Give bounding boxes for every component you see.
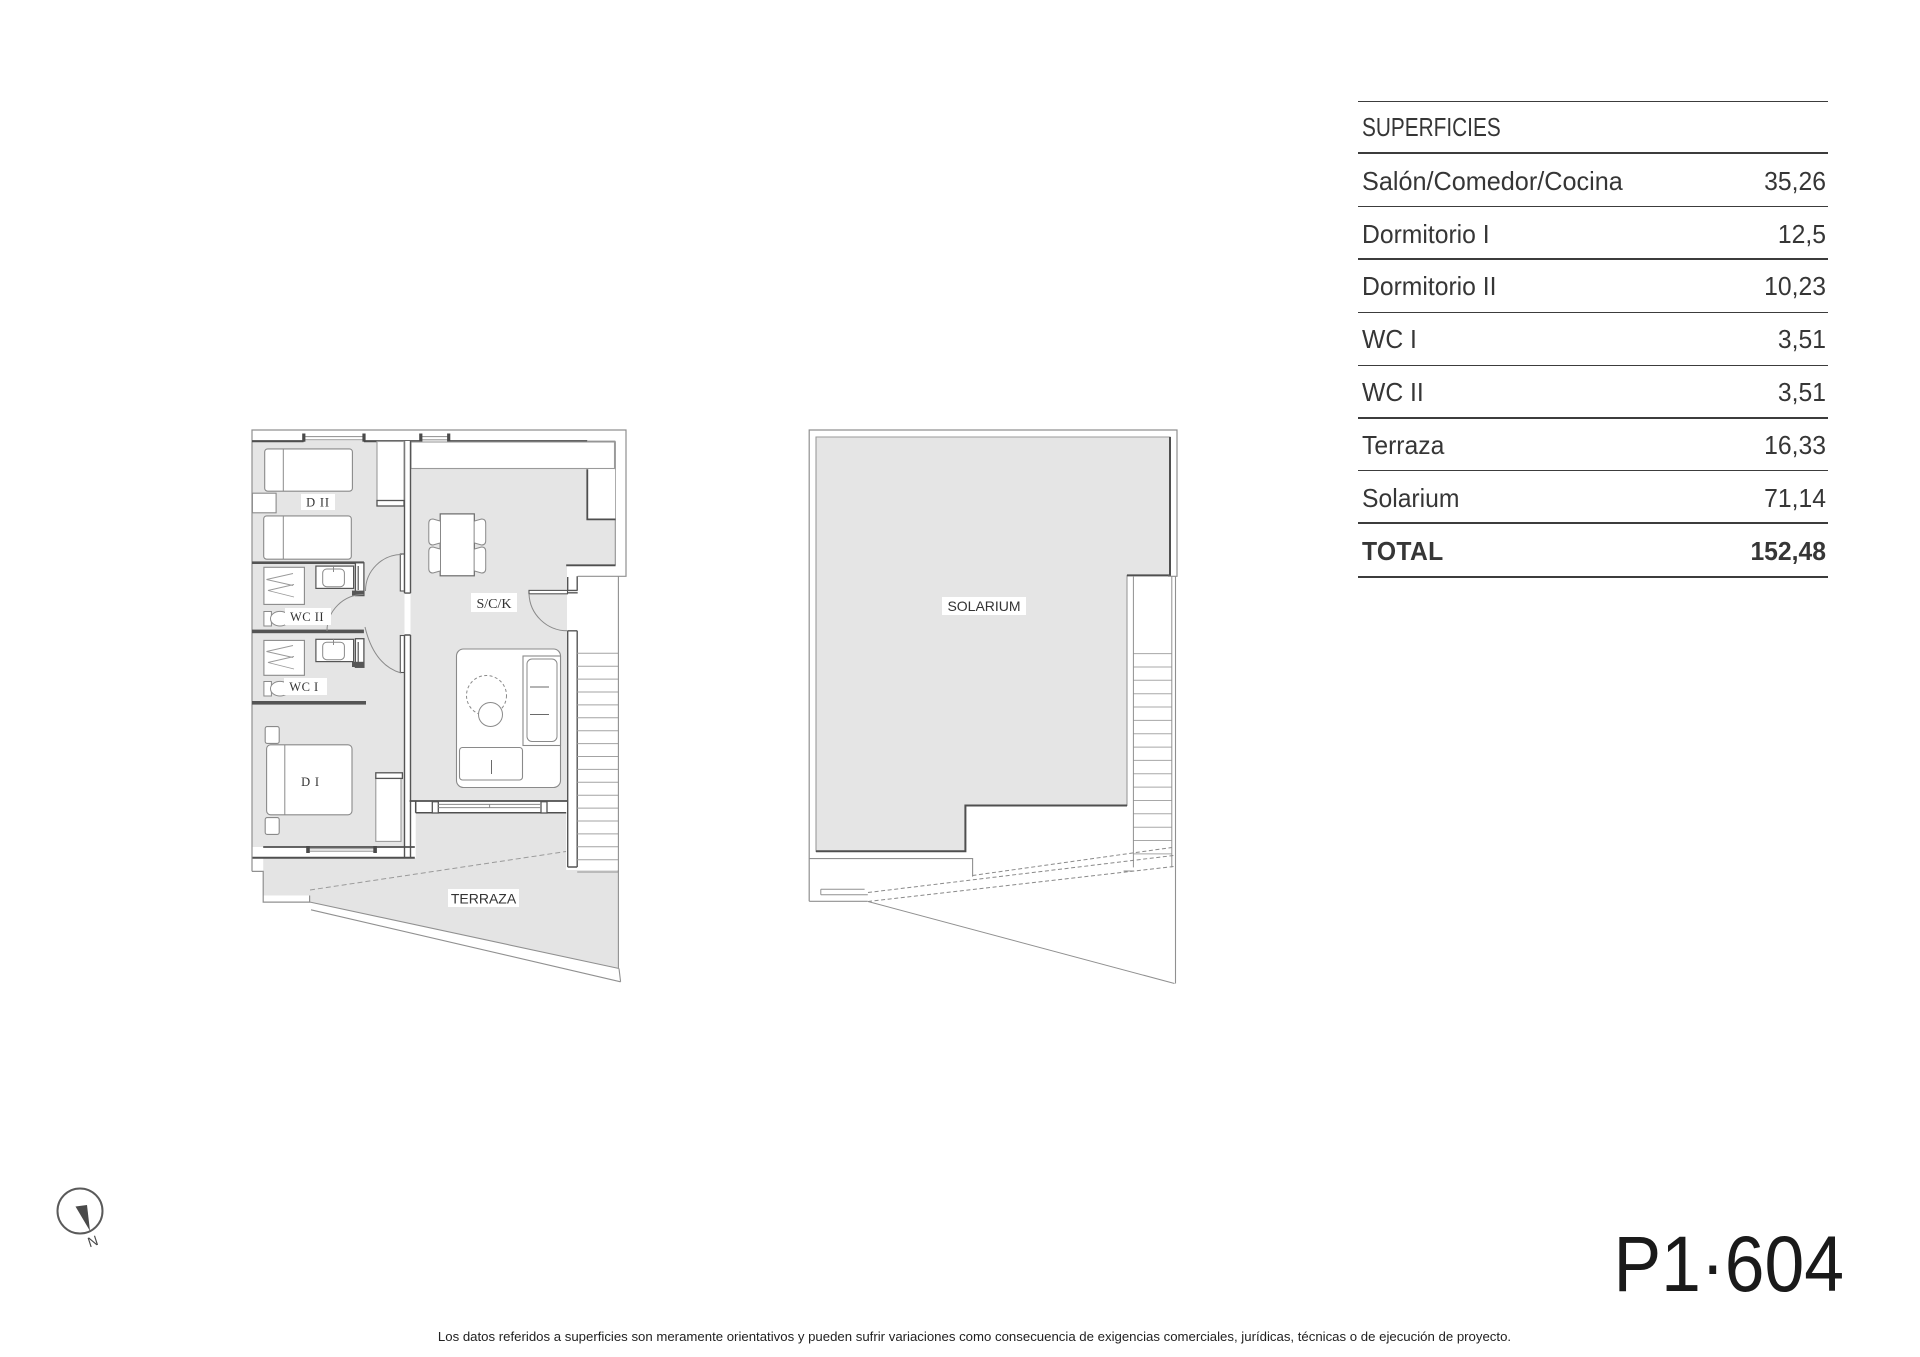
svg-text:N: N [85,1232,100,1250]
svg-text:WC II: WC II [290,610,324,624]
svg-text:WC I: WC I [289,680,318,694]
svg-text:D II: D II [306,496,330,510]
svg-text:SOLARIUM: SOLARIUM [947,598,1020,614]
svg-text:TERRAZA: TERRAZA [451,891,517,907]
svg-text:D I: D I [301,775,320,789]
svg-text:S/C/K: S/C/K [476,597,511,612]
